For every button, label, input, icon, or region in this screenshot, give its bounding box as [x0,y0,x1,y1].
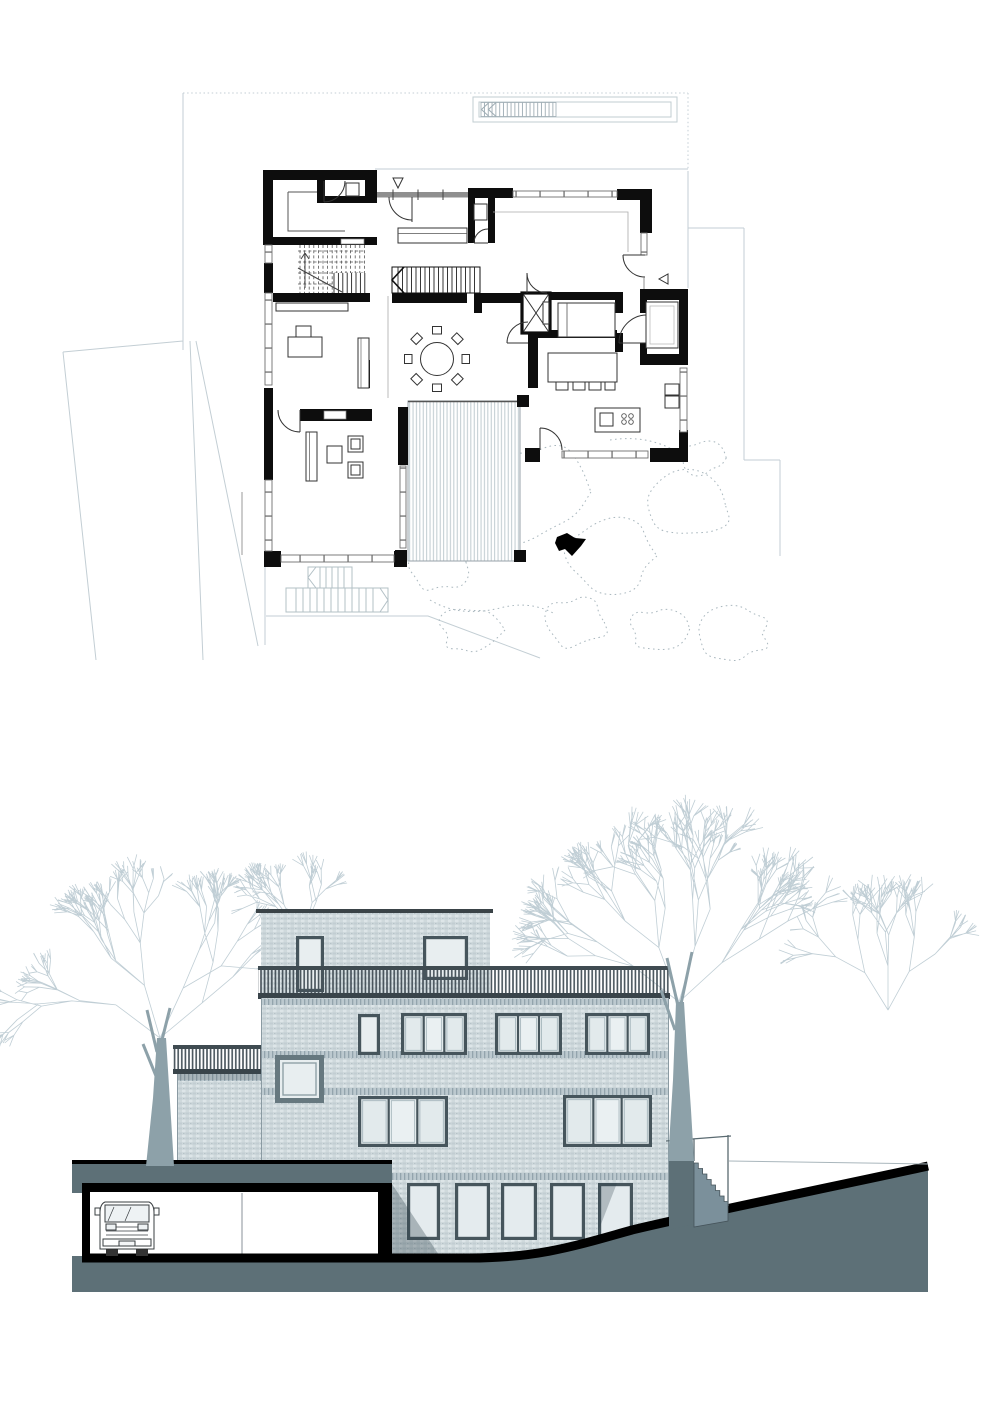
upper-mid [495,1013,562,1055]
wall-niche [341,239,364,244]
entrance-triangle-marker [393,178,403,188]
basement-3 [501,1183,537,1240]
roof-terrace-railing [258,966,670,999]
basement-4 [550,1183,585,1240]
site-boundary-lines [63,93,780,660]
kitchen-island [548,353,617,382]
side-entrance-triangle-marker [659,274,668,284]
upper-left [401,1013,467,1055]
penthouse-roof-slab [256,909,493,913]
garden-black-blob [555,533,586,556]
sliding-door-gap [324,411,346,419]
roof-stair-above [473,97,677,122]
elevation-drawing [0,700,1000,1414]
garage-ceiling-slab [82,1183,392,1192]
coffee-table [327,446,342,463]
upper-stair-dashed [298,245,365,293]
left-tree-trunk [146,1038,174,1166]
sofa [306,432,317,481]
main-stair-hall [392,267,480,293]
basement-2 [455,1183,490,1240]
garage-van [95,1202,159,1256]
horizon-line [729,1161,928,1164]
left-wing [173,1045,261,1168]
middle-right [563,1095,652,1147]
upper-right [585,1013,650,1055]
dining-table [421,343,454,376]
kitchen-counter-hob [595,408,640,432]
square-window [275,1055,324,1103]
bed [558,303,615,337]
upper-small [358,1014,380,1055]
architectural-sheet [0,0,1000,1414]
right-tree-trunk [668,1002,694,1161]
floor-plan-drawing [0,0,1000,700]
terrace-deck [408,401,520,561]
middle-left [358,1096,448,1147]
exterior-garden-stair [286,567,388,612]
entry-sill-band [377,192,468,198]
elevator [522,293,550,333]
